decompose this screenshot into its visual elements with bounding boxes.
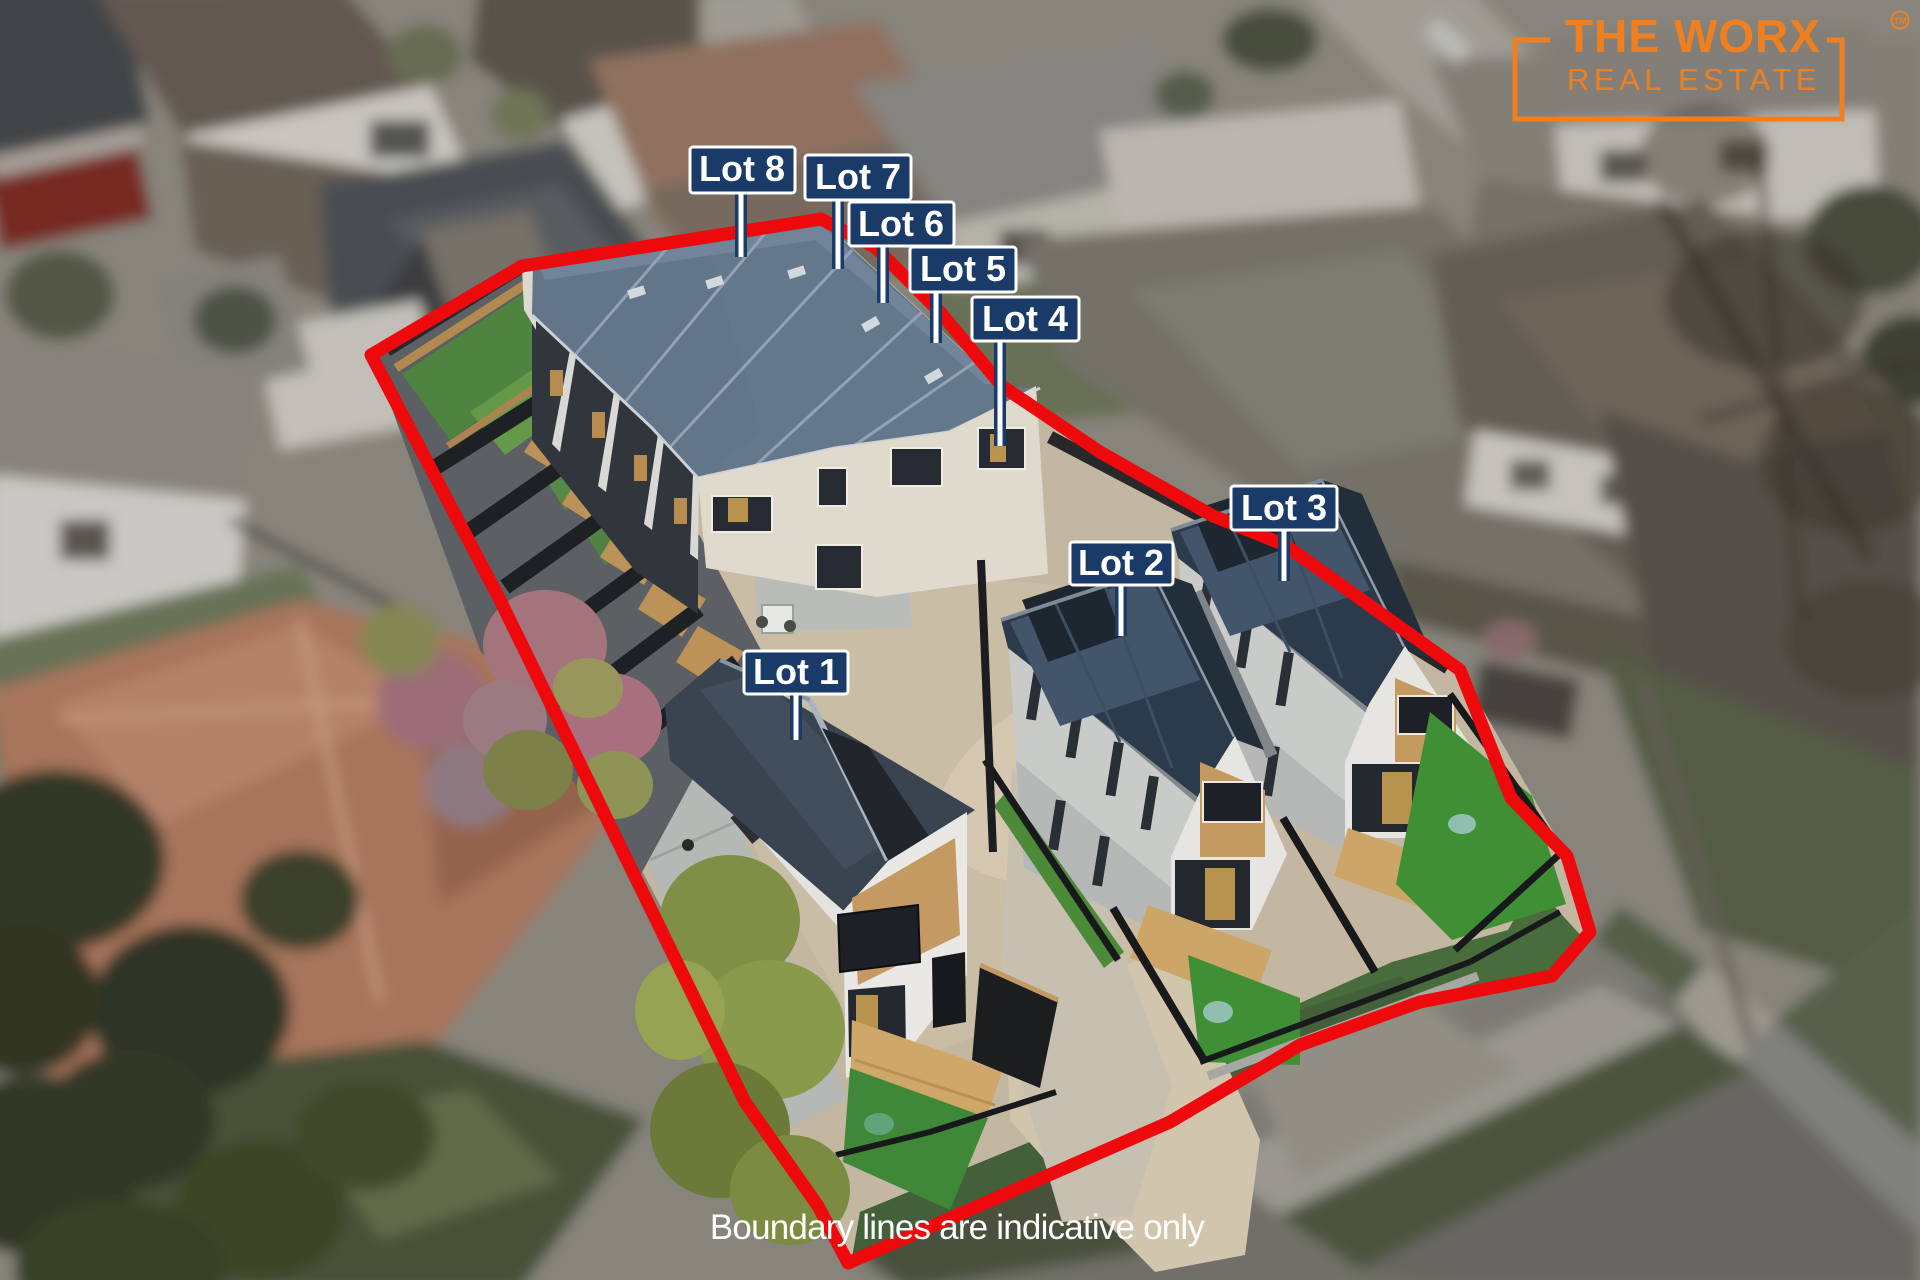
svg-text:Boundary lines are indicative: Boundary lines are indicative only xyxy=(710,1208,1206,1247)
svg-text:THE WORX: THE WORX xyxy=(1565,10,1821,62)
svg-text:Lot 2: Lot 2 xyxy=(1078,542,1164,583)
svg-text:Lot 5: Lot 5 xyxy=(920,248,1006,289)
svg-text:TM: TM xyxy=(1894,16,1907,26)
svg-text:Lot 7: Lot 7 xyxy=(815,156,901,197)
svg-text:Lot 6: Lot 6 xyxy=(858,203,944,244)
svg-text:Lot 8: Lot 8 xyxy=(699,148,785,189)
svg-text:Lot 4: Lot 4 xyxy=(982,298,1068,339)
svg-text:REAL ESTATE: REAL ESTATE xyxy=(1567,62,1821,97)
svg-text:Lot 3: Lot 3 xyxy=(1241,487,1327,528)
svg-text:Lot 1: Lot 1 xyxy=(753,651,839,692)
